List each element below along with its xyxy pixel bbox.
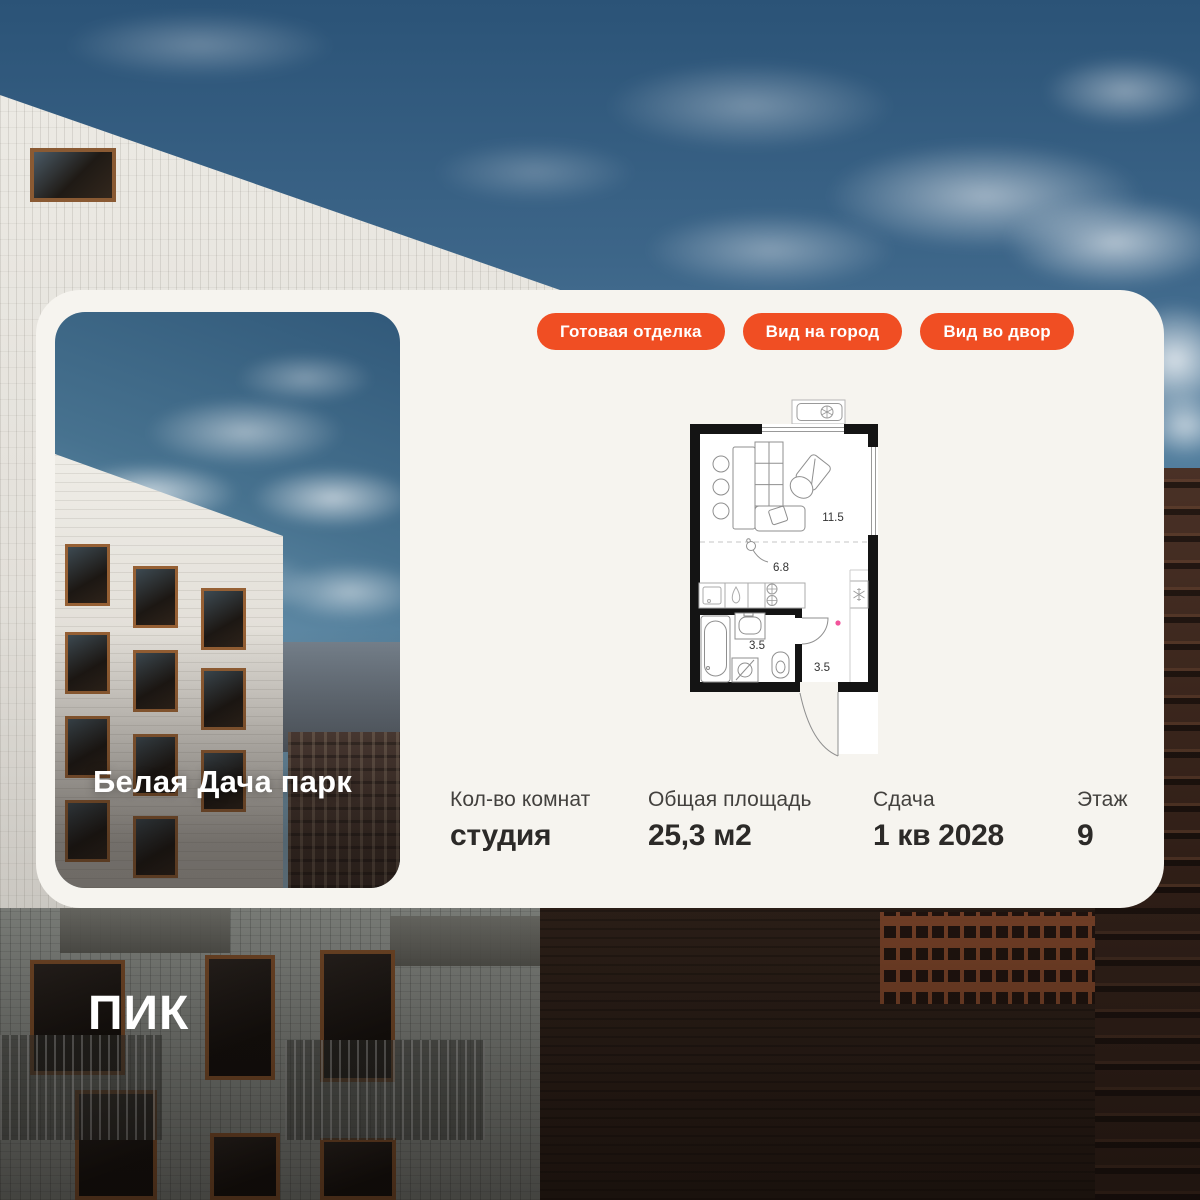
background-facade-band [0, 908, 1200, 1200]
stat-delivery: Сдача 1 кв 2028 [873, 788, 1004, 853]
kitchen-sink-icon [703, 587, 721, 604]
stat-label: Сдача [873, 788, 1004, 812]
area-kitchen: 6.8 [773, 562, 789, 574]
chair-icon [713, 456, 729, 472]
tag-yard-view[interactable]: Вид во двор [920, 313, 1074, 350]
fridge-icon [850, 581, 868, 608]
tag-city-view[interactable]: Вид на город [743, 313, 903, 350]
plan-entry-corridor [838, 692, 878, 754]
stat-value: 9 [1077, 819, 1128, 853]
cloud [430, 140, 640, 204]
tags-row: Готовая отделка Вид на город Вид во двор [537, 313, 1074, 350]
facade-dark-overlay [0, 908, 1200, 1200]
chair-icon [713, 479, 729, 495]
area-hallway: 3.5 [814, 662, 830, 674]
project-name: Белая Дача парк [93, 764, 352, 800]
cloud [1040, 55, 1200, 127]
cloud [600, 60, 900, 152]
ac-unit-icon [792, 400, 845, 424]
bathtub-icon [701, 616, 730, 682]
stat-floor: Этаж 9 [1077, 788, 1128, 853]
chair-icon [713, 503, 729, 519]
tag-finish[interactable]: Готовая отделка [537, 313, 725, 350]
photo-bottom-gradient [55, 312, 400, 888]
entrance-door [800, 692, 838, 756]
stat-label: Этаж [1077, 788, 1128, 812]
cloud [640, 210, 900, 290]
stat-label: Кол-во комнат [450, 788, 590, 812]
cloud [60, 10, 340, 80]
project-photo: Белая Дача парк [55, 312, 400, 888]
floorplan: 11.5 6.8 3.5 3.5 [660, 390, 900, 770]
toilet-icon [772, 652, 789, 678]
kitchen-counter [699, 583, 805, 608]
plan-marker-dot [835, 620, 840, 625]
stat-value: 1 кв 2028 [873, 819, 1004, 853]
area-living: 11.5 [822, 512, 844, 524]
table-icon [733, 447, 755, 529]
stat-label: Общая площадь [648, 788, 812, 812]
listing-card: Белая Дача парк Готовая отделка Вид на г… [36, 290, 1164, 908]
stat-value: студия [450, 819, 590, 853]
area-bathroom: 3.5 [749, 640, 765, 652]
stat-value: 25,3 м2 [648, 819, 812, 853]
background-building-window [30, 148, 116, 202]
stat-area: Общая площадь 25,3 м2 [648, 788, 812, 853]
stat-rooms: Кол-во комнат студия [450, 788, 590, 853]
pik-logo: ПИК [88, 990, 189, 1038]
